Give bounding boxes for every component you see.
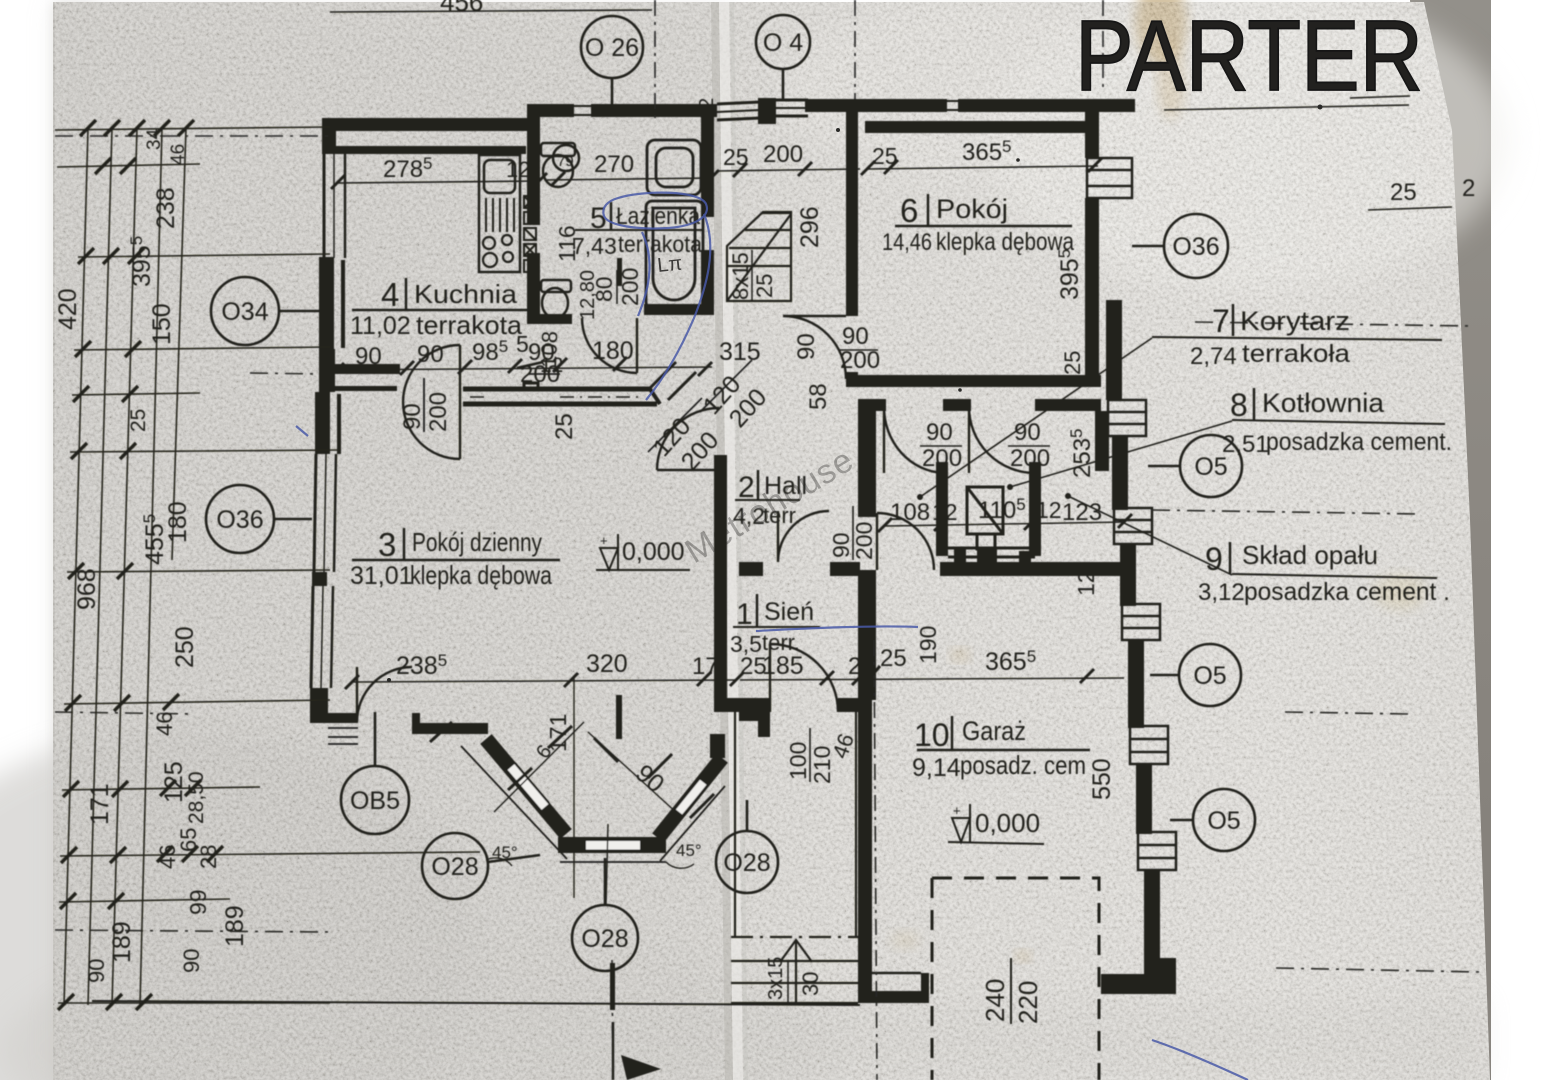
svg-text:terrakota: terrakota [416, 310, 523, 340]
svg-text:Hall: Hall [764, 472, 807, 500]
svg-text:klepka dębowa: klepka dębowa [410, 560, 552, 590]
svg-text:0,000: 0,000 [622, 538, 685, 566]
svg-text:7: 7 [1212, 303, 1230, 339]
svg-text:8: 8 [1230, 387, 1248, 423]
svg-text:200: 200 [763, 141, 803, 168]
svg-text:90: 90 [926, 419, 953, 446]
svg-text:58: 58 [805, 383, 832, 410]
svg-text:25: 25 [1060, 351, 1085, 375]
svg-text:terrakoła: terrakoła [1242, 340, 1350, 368]
svg-text:240: 240 [980, 979, 1010, 1022]
svg-text:200: 200 [617, 268, 643, 306]
svg-text:190: 190 [915, 626, 941, 664]
svg-text:4: 4 [381, 276, 399, 313]
svg-text:238: 238 [152, 187, 180, 229]
svg-text:terr.: terr. [763, 503, 801, 528]
svg-text:90: 90 [84, 959, 109, 983]
svg-text:Sień: Sień [764, 598, 814, 626]
svg-text:200: 200 [851, 522, 877, 560]
svg-text:108: 108 [536, 331, 562, 369]
svg-text:klepka dębowa: klepka dębowa [936, 228, 1074, 256]
svg-text:270: 270 [594, 151, 634, 178]
svg-text:Pokój: Pokój [936, 194, 1008, 224]
svg-text:28: 28 [196, 845, 221, 869]
svg-text:Pokój dzienny: Pokój dzienny [412, 527, 542, 557]
svg-text:100: 100 [785, 742, 811, 780]
svg-text:25: 25 [551, 413, 578, 440]
svg-text:189: 189 [221, 905, 249, 947]
svg-text:O5: O5 [1207, 807, 1240, 835]
svg-text:O28: O28 [723, 849, 770, 877]
svg-text:90: 90 [793, 333, 820, 360]
svg-text:90: 90 [842, 323, 869, 350]
svg-text:420: 420 [54, 288, 82, 330]
svg-text:116: 116 [554, 225, 580, 262]
svg-text:31,01: 31,01 [350, 562, 413, 590]
svg-text:+: + [953, 803, 961, 818]
svg-text:posadzka cement.: posadzka cement. [1266, 428, 1452, 456]
svg-text:968: 968 [73, 568, 101, 610]
svg-text:O5: O5 [1193, 662, 1226, 690]
svg-text:+: + [600, 533, 608, 548]
svg-text:90: 90 [355, 343, 382, 370]
svg-text:Korytarz: Korytarz [1240, 306, 1350, 336]
svg-text:PARTER: PARTER [1075, 0, 1423, 112]
svg-text:25: 25 [1390, 179, 1417, 206]
svg-text:O5: O5 [1194, 453, 1227, 481]
svg-text:125: 125 [160, 761, 188, 803]
svg-text:Lπ: Lπ [656, 252, 683, 276]
svg-text:45°: 45° [676, 841, 702, 860]
svg-text:90: 90 [1014, 419, 1041, 446]
svg-text:250: 250 [171, 626, 199, 668]
svg-text:45°: 45° [492, 843, 518, 862]
svg-text:Kuchnia: Kuchnia [414, 279, 518, 309]
svg-text:189: 189 [108, 921, 136, 963]
svg-text:108: 108 [890, 499, 930, 526]
svg-text:2: 2 [1462, 175, 1475, 202]
svg-text:315: 315 [719, 338, 761, 366]
svg-text:180: 180 [592, 337, 634, 365]
svg-text:6: 6 [900, 192, 918, 229]
svg-text:220: 220 [1013, 981, 1043, 1024]
svg-text:296: 296 [796, 206, 824, 248]
svg-text:O 26: O 26 [585, 34, 639, 62]
svg-text:12: 12 [1073, 570, 1099, 596]
svg-text:14,46: 14,46 [882, 229, 932, 256]
svg-text:171: 171 [86, 783, 114, 825]
svg-text:12: 12 [506, 157, 530, 182]
svg-text:Garaż: Garaż [962, 716, 1026, 746]
svg-text:terrakota: terrakota [618, 231, 702, 257]
svg-text:3: 3 [378, 526, 396, 563]
svg-text:99: 99 [185, 889, 211, 915]
svg-text:3x15: 3x15 [765, 957, 787, 1000]
svg-text:79: 79 [557, 153, 574, 170]
svg-text:O36: O36 [216, 506, 263, 534]
svg-text:O28: O28 [581, 925, 628, 953]
svg-text:46: 46 [168, 144, 189, 165]
svg-text:O28: O28 [431, 853, 478, 881]
svg-text:posadz. cem: posadz. cem [960, 750, 1086, 780]
svg-text:9,14: 9,14 [912, 754, 961, 782]
svg-text:Skład opału: Skład opału [1242, 540, 1378, 570]
svg-text:2,74: 2,74 [1190, 343, 1237, 370]
svg-text:posadzka cement .: posadzka cement . [1244, 578, 1450, 606]
svg-text:34: 34 [144, 128, 165, 150]
svg-text:200: 200 [922, 445, 962, 472]
svg-text:OB5: OB5 [350, 787, 400, 815]
svg-text:46: 46 [155, 845, 180, 869]
svg-text:10: 10 [914, 717, 950, 753]
svg-text:4,2: 4,2 [733, 503, 765, 529]
svg-text:200: 200 [840, 347, 880, 374]
svg-text:O36: O36 [1172, 233, 1219, 261]
svg-text:Kotłownia: Kotłownia [1262, 388, 1385, 418]
svg-text:11,02: 11,02 [350, 312, 411, 340]
svg-text:12: 12 [1036, 497, 1062, 523]
svg-text:320: 320 [586, 650, 628, 678]
svg-text:O 4: O 4 [763, 29, 803, 57]
svg-text:200: 200 [1010, 445, 1050, 472]
svg-text:2,51: 2,51 [1222, 431, 1269, 458]
svg-text:30: 30 [798, 972, 823, 996]
svg-text:200: 200 [425, 392, 452, 432]
svg-text:25: 25 [880, 645, 907, 672]
svg-text:456: 456 [440, 0, 483, 17]
svg-text:90: 90 [417, 341, 444, 368]
svg-text:8x15: 8x15 [728, 252, 753, 300]
svg-text:90: 90 [399, 403, 426, 430]
svg-text:550: 550 [1088, 758, 1116, 800]
svg-text:80: 80 [591, 276, 617, 302]
svg-text:12: 12 [696, 98, 718, 120]
svg-text:90: 90 [179, 949, 204, 973]
svg-text:150: 150 [148, 303, 176, 345]
svg-text:25: 25 [752, 274, 777, 298]
svg-text:0,000: 0,000 [975, 808, 1040, 838]
svg-text:25: 25 [127, 409, 150, 432]
svg-text:3,12: 3,12 [1198, 579, 1245, 606]
svg-text:5: 5 [516, 331, 529, 357]
svg-text:9: 9 [1205, 541, 1223, 577]
svg-text:28,50: 28,50 [185, 771, 208, 824]
svg-text:O34: O34 [221, 298, 268, 326]
svg-text:185: 185 [762, 652, 804, 680]
svg-text:46: 46 [152, 712, 177, 736]
